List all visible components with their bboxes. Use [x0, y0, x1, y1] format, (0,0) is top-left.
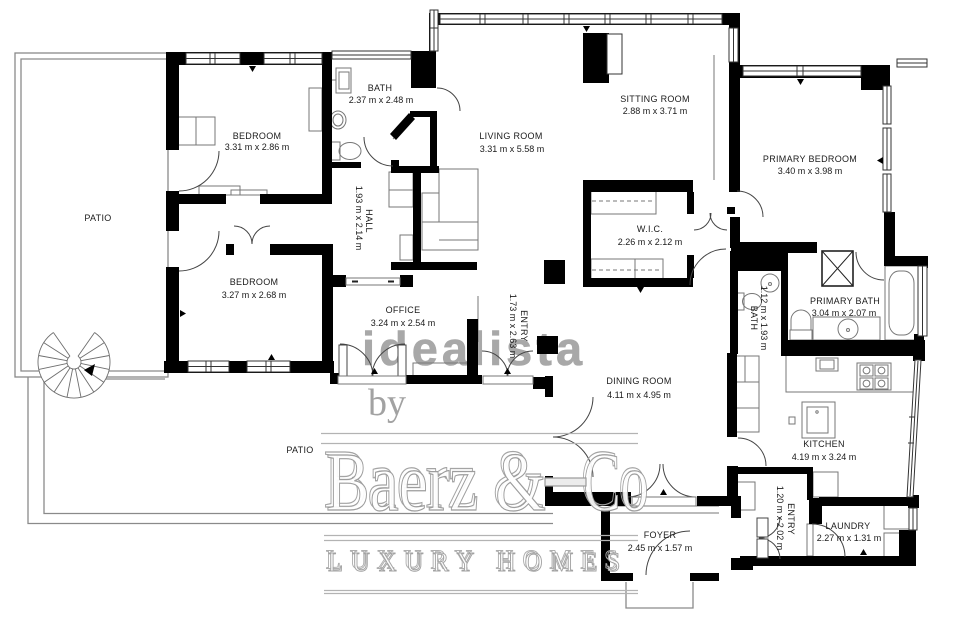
- svg-text:LUXURY HOMES: LUXURY HOMES: [328, 547, 629, 577]
- svg-text:PATIO: PATIO: [286, 445, 313, 455]
- svg-text:SITTING ROOM: SITTING ROOM: [620, 94, 690, 104]
- svg-text:3.04 m x 2.07 m: 3.04 m x 2.07 m: [812, 308, 877, 318]
- svg-text:4.11 m x 4.95 m: 4.11 m x 4.95 m: [607, 390, 671, 400]
- svg-text:1.12 m x 1.93 m: 1.12 m x 1.93 m: [759, 286, 769, 351]
- svg-text:Co: Co: [583, 436, 649, 529]
- svg-text:1.93 m x 2.14 m: 1.93 m x 2.14 m: [354, 186, 364, 251]
- svg-text:DINING ROOM: DINING ROOM: [606, 376, 671, 386]
- svg-text:FOYER: FOYER: [644, 530, 677, 540]
- svg-text:3.27 m x 2.68 m: 3.27 m x 2.68 m: [222, 290, 287, 300]
- svg-text:PRIMARY BEDROOM: PRIMARY BEDROOM: [763, 154, 857, 164]
- svg-text:2.37 m x 2.48 m: 2.37 m x 2.48 m: [349, 95, 414, 105]
- svg-text:BEDROOM: BEDROOM: [230, 277, 279, 287]
- svg-text:2.26 m x 2.12 m: 2.26 m x 2.12 m: [618, 237, 683, 247]
- svg-text:3.24 m x 2.54 m: 3.24 m x 2.54 m: [371, 318, 436, 328]
- svg-text:HALL: HALL: [364, 209, 374, 233]
- svg-text:2.27 m x 1.31 m: 2.27 m x 1.31 m: [817, 533, 882, 543]
- svg-text:ENTRY: ENTRY: [786, 503, 796, 535]
- svg-text:LAUNDRY: LAUNDRY: [826, 521, 871, 531]
- svg-text:Baerz &: Baerz &: [326, 436, 546, 529]
- svg-text:PATIO: PATIO: [84, 213, 111, 223]
- svg-text:W.I.C.: W.I.C.: [637, 224, 663, 234]
- svg-text:KITCHEN: KITCHEN: [803, 439, 845, 449]
- svg-text:BATH: BATH: [749, 306, 759, 331]
- svg-text:by: by: [368, 382, 406, 424]
- svg-text:2.45 m x 1.57 m: 2.45 m x 1.57 m: [628, 543, 693, 553]
- svg-text:3.31 m x 2.86 m: 3.31 m x 2.86 m: [225, 142, 290, 152]
- svg-text:3.31 m x 5.58 m: 3.31 m x 5.58 m: [480, 144, 545, 154]
- svg-text:4.19 m x 3.24 m: 4.19 m x 3.24 m: [792, 452, 857, 462]
- svg-text:BEDROOM: BEDROOM: [233, 131, 282, 141]
- svg-text:OFFICE: OFFICE: [386, 305, 421, 315]
- svg-text:PRIMARY BATH: PRIMARY BATH: [810, 296, 880, 306]
- svg-text:2.88 m x 3.71 m: 2.88 m x 3.71 m: [623, 106, 688, 116]
- svg-text:1.73 m x 2.63 m: 1.73 m x 2.63 m: [508, 294, 518, 359]
- svg-text:BATH: BATH: [368, 83, 393, 93]
- svg-text:LIVING ROOM: LIVING ROOM: [479, 131, 542, 141]
- svg-text:ENTRY: ENTRY: [519, 310, 529, 342]
- svg-text:3.40 m x 3.98 m: 3.40 m x 3.98 m: [778, 166, 843, 176]
- svg-text:1.20 m x 2.02 m: 1.20 m x 2.02 m: [775, 486, 785, 551]
